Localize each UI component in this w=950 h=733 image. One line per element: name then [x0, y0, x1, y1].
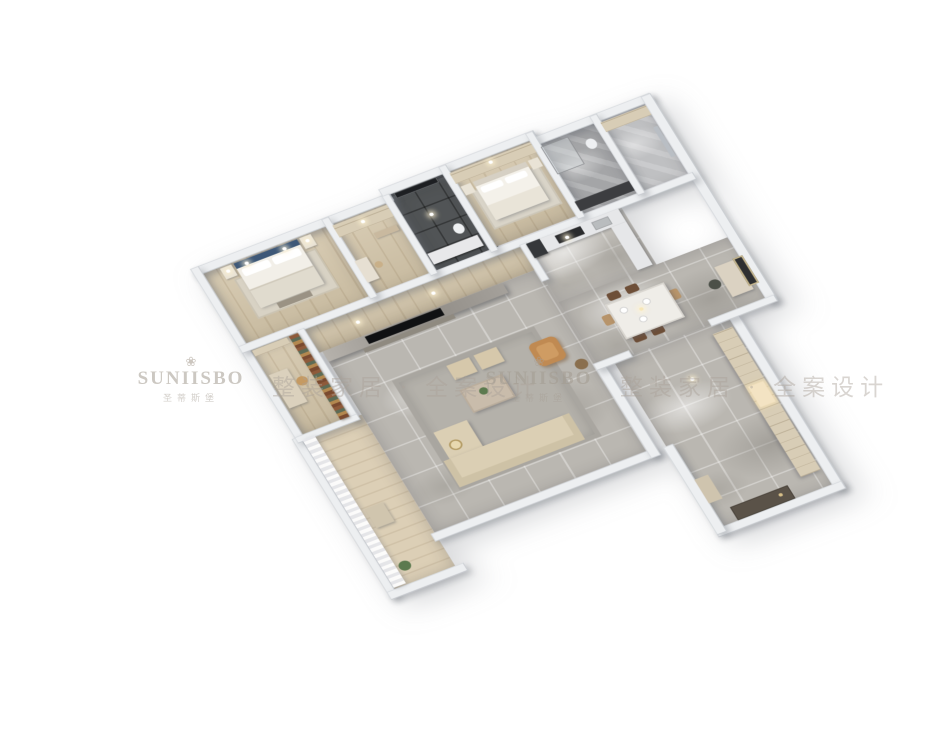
watermark-logo: ❀ SUNIISBO 圣蒂斯堡 [136, 356, 246, 404]
render-canvas: ❀ SUNIISBO 圣蒂斯堡 整装家居 · 全案设计 ❀ SUNIISBO 圣… [0, 0, 950, 733]
watermark-brand-text: SUNIISBO [484, 368, 594, 390]
flower-icon: ❀ [136, 356, 246, 368]
watermark-brand-chinese: 圣蒂斯堡 [484, 391, 594, 404]
watermark-tagline: 整装家居 · 全案设计 [620, 368, 889, 402]
flower-icon: ❀ [484, 356, 594, 368]
watermark-brand-text: SUNIISBO [136, 368, 246, 390]
watermark-logo: ❀ SUNIISBO 圣蒂斯堡 [484, 356, 594, 404]
watermark-brand-chinese: 圣蒂斯堡 [136, 391, 246, 404]
